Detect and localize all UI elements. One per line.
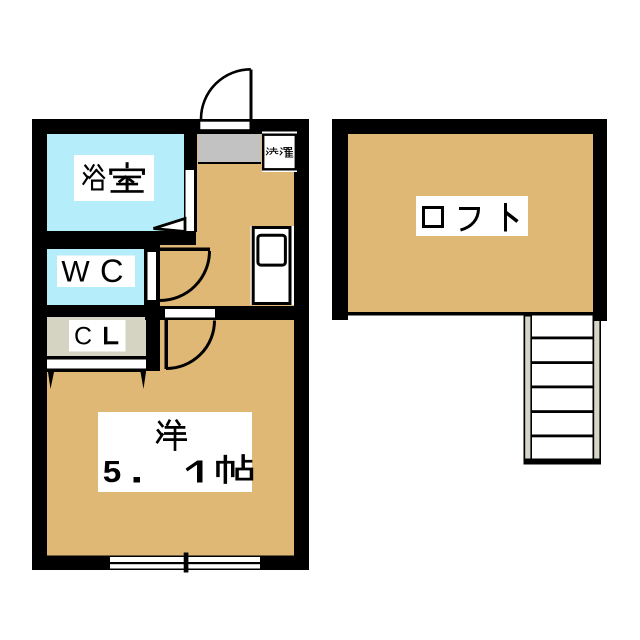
svg-text:W: W xyxy=(61,256,90,289)
svg-text:5: 5 xyxy=(103,454,122,489)
svg-text:C: C xyxy=(100,253,123,289)
svg-text:C: C xyxy=(74,322,92,350)
